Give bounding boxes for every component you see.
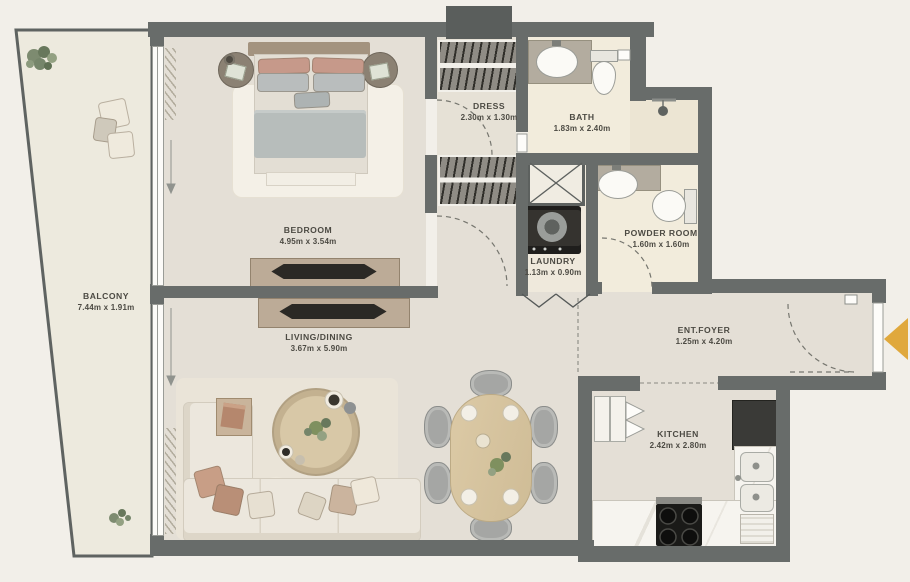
room-dims: 1.83m x 2.40m (554, 123, 611, 134)
dining-chair (530, 406, 558, 448)
bath-sink (536, 46, 578, 78)
room-name: ENT.FOYER (676, 325, 733, 337)
room-dims: 7.44m x 1.91m (78, 302, 135, 313)
wall (150, 534, 164, 556)
sofa-pillow (246, 490, 275, 519)
wall-column (446, 6, 512, 39)
room-label-living-dining: LIVING/DINING 3.67m x 5.90m (285, 332, 353, 354)
wall (718, 376, 886, 390)
living-window (152, 304, 164, 536)
room-name: POWDER ROOM (624, 228, 697, 240)
stove-control-strip (656, 497, 702, 504)
room-dims: 1.13m x 0.90m (525, 267, 582, 278)
room-label-dress: DRESS 2.30m x 1.30m (461, 101, 518, 123)
bath-faucet (552, 40, 561, 46)
floor-plan: BALCONY 7.44m x 1.91m BEDROOM 4.95m x 3.… (0, 0, 910, 582)
wall (652, 282, 712, 294)
bedroom-tv (268, 264, 380, 279)
room-label-powder-room: POWDER ROOM 1.60m x 1.60m (624, 228, 697, 250)
room-name: KITCHEN (650, 429, 707, 441)
room-label-kitchen: KITCHEN 2.42m x 2.80m (650, 429, 707, 451)
kitchen-sink-bowl (740, 484, 774, 512)
sofa-blanket (220, 403, 245, 430)
wall-tv-partition (152, 286, 438, 298)
curtain (165, 428, 176, 534)
room-dims: 2.42m x 2.80m (650, 440, 707, 451)
room-dims: 1.60m x 1.60m (624, 239, 697, 250)
wall (776, 390, 790, 550)
dining-chair (530, 462, 558, 504)
room-dims: 3.67m x 5.90m (285, 343, 353, 354)
duct-shaft (527, 160, 585, 206)
room-label-balcony: BALCONY 7.44m x 1.91m (78, 291, 135, 313)
powder-sink (598, 170, 638, 199)
room-label-bath: BATH 1.83m x 2.40m (554, 112, 611, 134)
bed-pillow (313, 73, 365, 92)
wall-entry-jamb (872, 293, 886, 303)
room-name: BALCONY (78, 291, 135, 303)
wall (578, 376, 592, 552)
room-dims: 2.30m x 1.30m (461, 112, 518, 123)
powder-toilet-bowl (652, 190, 686, 222)
wall (578, 376, 640, 391)
wall (150, 540, 594, 556)
bedroom-window (152, 46, 164, 286)
bed-pillow (257, 73, 309, 92)
wall (148, 22, 654, 37)
wall (698, 99, 712, 281)
room-dims: 1.25m x 4.20m (676, 336, 733, 347)
bed-bench (266, 172, 356, 186)
wardrobe (438, 155, 520, 206)
wall (516, 153, 712, 165)
wall (425, 37, 437, 99)
room-dims: 4.95m x 3.54m (280, 236, 337, 247)
room-label-bedroom: BEDROOM 4.95m x 3.54m (280, 225, 337, 247)
wall (586, 282, 602, 294)
curtain (165, 48, 176, 120)
room-name: DRESS (461, 101, 518, 113)
wardrobe (438, 40, 520, 92)
stove (656, 504, 702, 546)
room-name: LIVING/DINING (285, 332, 353, 344)
sofa-pillow (211, 483, 244, 516)
living-tv (276, 304, 390, 319)
kitchen-tall-cabinet (732, 400, 780, 450)
bed-accent-pillow (294, 91, 331, 109)
wall (150, 22, 164, 46)
wall (516, 37, 528, 132)
dining-chair (424, 462, 452, 504)
wall (698, 279, 886, 293)
sofa-pillow (350, 476, 381, 507)
washing-machine-drum (537, 212, 567, 242)
dining-chair (424, 406, 452, 448)
room-label-laundry: LAUNDRY 1.13m x 0.90m (525, 256, 582, 278)
wall (425, 155, 437, 213)
dining-table (450, 394, 532, 522)
bed-duvet (254, 110, 366, 158)
room-label-ent-foyer: ENT.FOYER 1.25m x 4.20m (676, 325, 733, 347)
wall (586, 165, 598, 296)
wall (578, 546, 790, 562)
nightstand-lamp (224, 54, 235, 65)
room-name: BATH (554, 112, 611, 124)
kitchen-drainboard (740, 514, 774, 544)
room-name: BEDROOM (280, 225, 337, 237)
balcony-cushion (107, 131, 136, 160)
kitchen-sink-bowl (740, 452, 774, 482)
coffee-table (272, 388, 360, 476)
entry-arrow-icon (884, 318, 908, 360)
fridge (594, 396, 626, 442)
room-name: LAUNDRY (525, 256, 582, 268)
